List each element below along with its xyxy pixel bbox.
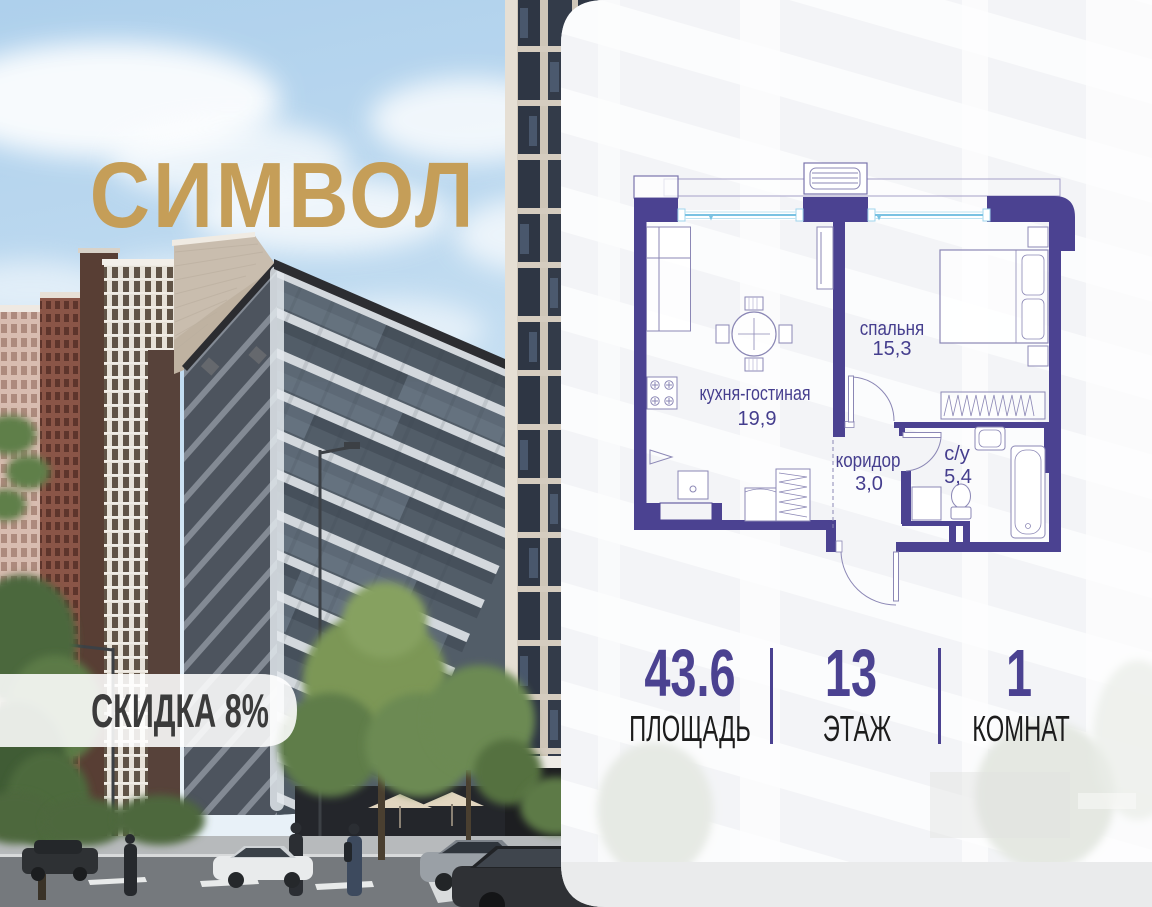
svg-text:1: 1: [1006, 637, 1032, 711]
svg-text:СКИДКА 8%: СКИДКА 8%: [91, 685, 269, 737]
svg-text:3,0: 3,0: [855, 473, 883, 495]
svg-text:13: 13: [825, 637, 877, 711]
svg-text:коридор: коридор: [836, 449, 901, 472]
svg-text:ПЛОЩАДЬ: ПЛОЩАДЬ: [629, 709, 751, 749]
svg-text:СИМВОЛ: СИМВОЛ: [90, 143, 477, 247]
svg-text:кухня-гостиная: кухня-гостиная: [699, 382, 810, 404]
svg-text:ЭТАЖ: ЭТАЖ: [823, 709, 892, 749]
svg-text:КОМНАТ: КОМНАТ: [972, 709, 1070, 749]
svg-text:19,9: 19,9: [738, 408, 777, 430]
svg-text:43.6: 43.6: [644, 637, 735, 711]
svg-text:спальня: спальня: [860, 317, 924, 340]
svg-text:с/у: с/у: [944, 443, 970, 465]
svg-text:15,3: 15,3: [873, 338, 912, 360]
svg-text:5,4: 5,4: [944, 466, 972, 488]
